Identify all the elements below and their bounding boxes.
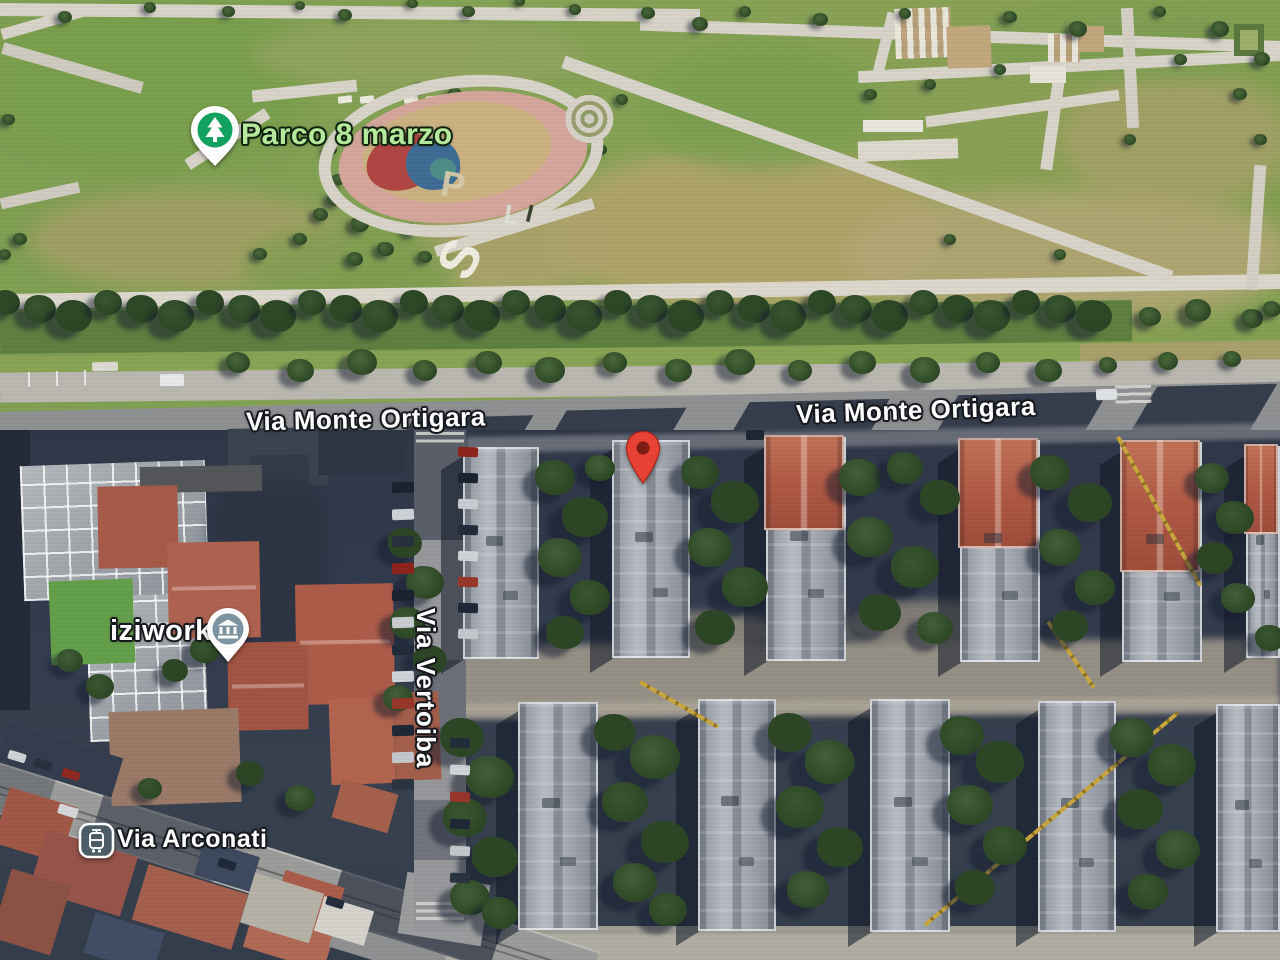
tree: [58, 11, 72, 23]
building-roof: [518, 702, 598, 930]
building-shadow: [1194, 712, 1218, 947]
tree: [298, 290, 326, 315]
tree: [872, 300, 908, 332]
roof-unit: [503, 591, 518, 600]
tree: [260, 300, 296, 332]
tree: [57, 649, 83, 672]
apartment-building: [518, 702, 598, 930]
tree: [443, 798, 487, 837]
tree: [665, 359, 692, 383]
tree: [1254, 52, 1270, 66]
apartment-building: [766, 437, 846, 661]
tree: [313, 208, 328, 221]
parked-car: [392, 779, 414, 791]
tree: [594, 714, 636, 751]
tree: [253, 248, 267, 260]
tree: [808, 290, 836, 315]
tree: [768, 713, 812, 752]
roof-unit: [1256, 535, 1263, 545]
tree: [649, 893, 687, 926]
tree: [585, 455, 615, 481]
tree: [847, 517, 893, 557]
tree: [917, 612, 953, 644]
tree: [362, 300, 398, 332]
terrain-feature: [318, 430, 403, 475]
roof-unit: [808, 589, 824, 598]
tree: [94, 290, 122, 315]
tree: [287, 359, 314, 383]
street-label-arconati: Via Arconati: [117, 825, 268, 854]
tree: [475, 351, 502, 375]
tree: [222, 6, 235, 17]
tree: [1154, 6, 1166, 17]
tree: [293, 233, 307, 245]
roof-unit: [894, 797, 912, 807]
parked-car: [458, 603, 478, 614]
tree: [1158, 352, 1178, 370]
tree: [1117, 789, 1163, 829]
tree: [924, 79, 936, 90]
tree: [295, 1, 305, 10]
tree: [1221, 583, 1255, 613]
tree: [788, 360, 812, 381]
grass-patch: [1060, 70, 1280, 210]
tree: [534, 295, 566, 323]
tree: [538, 538, 582, 577]
tree: [1035, 359, 1062, 383]
tree: [86, 674, 114, 699]
roof-unit: [1164, 592, 1180, 601]
roof-unit: [635, 532, 652, 542]
parked-car: [392, 509, 414, 521]
tree: [2, 114, 15, 125]
tree: [681, 456, 719, 489]
park-label[interactable]: Parco 8 marzo: [241, 118, 453, 152]
tree: [1216, 501, 1254, 534]
tree: [840, 295, 872, 323]
terrain-feature: [329, 697, 396, 785]
tree: [839, 459, 881, 496]
roof-unit: [739, 857, 755, 866]
apartment-building: [870, 699, 950, 932]
tree: [1099, 357, 1117, 373]
tree: [1185, 299, 1211, 322]
roof-unit: [1249, 859, 1262, 868]
tree: [482, 897, 518, 929]
tree: [1197, 542, 1233, 574]
tree: [562, 497, 608, 537]
garden-grid: [1048, 34, 1080, 62]
apartment-building: [1122, 442, 1202, 662]
roof-unit: [912, 857, 928, 866]
parking-line: [28, 372, 30, 387]
parking-line: [84, 370, 86, 385]
business-label[interactable]: iziwork: [110, 615, 212, 648]
tree: [813, 13, 828, 26]
tree: [1195, 463, 1229, 493]
tree: [462, 6, 475, 17]
tree: [940, 716, 984, 755]
tree: [887, 452, 923, 484]
building-shadow: [441, 455, 465, 674]
tree: [1241, 309, 1263, 328]
tree: [1128, 874, 1168, 909]
tree: [236, 761, 264, 786]
tree: [630, 735, 680, 779]
parking-line: [56, 371, 58, 386]
roof-unit: [542, 798, 560, 808]
apartment-building: [960, 440, 1040, 662]
tree: [770, 300, 806, 332]
tree: [0, 249, 11, 260]
apartment-building: [698, 699, 776, 931]
crosswalk: [1115, 385, 1152, 408]
tree: [196, 290, 224, 315]
roof-unit: [1002, 591, 1018, 600]
tree: [725, 349, 755, 375]
tree: [535, 460, 575, 495]
parked-car: [458, 577, 478, 588]
parked-car: [450, 845, 470, 856]
tree: [162, 659, 188, 682]
tree: [1012, 290, 1040, 315]
parked-car: [450, 872, 470, 883]
tree: [1124, 134, 1136, 145]
tree: [668, 300, 704, 332]
parked-car: [458, 551, 478, 562]
tree: [776, 786, 824, 828]
tree: [1255, 625, 1280, 651]
tree: [285, 785, 315, 811]
tree: [899, 8, 911, 19]
parked-car: [458, 499, 478, 510]
tree: [1003, 11, 1017, 23]
garden-plot: [1030, 66, 1066, 83]
roof-unit: [1079, 858, 1095, 867]
tree: [1148, 744, 1196, 786]
parked-car: [458, 525, 478, 536]
tree: [1069, 21, 1087, 37]
vehicle: [746, 430, 764, 440]
tree: [983, 826, 1027, 865]
tree: [1075, 570, 1115, 605]
tree: [1156, 830, 1200, 869]
tree: [891, 546, 939, 588]
tree: [566, 300, 602, 332]
red-tile-roof: [958, 438, 1038, 548]
parked-car: [450, 791, 470, 802]
roof-unit: [721, 796, 738, 806]
building-roof: [698, 699, 776, 931]
building-shadow: [848, 707, 872, 947]
tree: [226, 352, 250, 373]
tree: [228, 295, 260, 323]
tree: [472, 837, 518, 877]
roof-unit: [984, 533, 1002, 543]
tree: [910, 357, 940, 383]
building-shadow: [590, 448, 614, 673]
tree: [688, 528, 732, 567]
tree: [466, 756, 514, 798]
tree: [613, 863, 657, 902]
tree: [347, 252, 363, 266]
tree: [910, 290, 938, 315]
tree: [377, 242, 394, 257]
tree: [330, 295, 362, 323]
tree: [976, 741, 1024, 783]
building-roof: [870, 699, 950, 932]
tree: [1223, 351, 1241, 367]
roof-unit: [1264, 590, 1271, 599]
street-label-ortigara-west: Via Monte Ortigara: [246, 401, 486, 437]
tree: [138, 778, 162, 799]
roof-unit: [560, 857, 576, 866]
parked-car: [450, 764, 470, 775]
tree: [1039, 529, 1081, 566]
tree: [1044, 295, 1076, 323]
tree: [535, 357, 565, 383]
tree: [1139, 307, 1161, 326]
tree: [347, 349, 377, 375]
tree: [464, 300, 500, 332]
tree: [604, 290, 632, 315]
tree: [859, 594, 901, 631]
tree: [692, 17, 708, 31]
roof-unit: [1146, 534, 1164, 544]
tree: [400, 290, 428, 315]
shelter: [92, 362, 118, 371]
parked-car: [458, 473, 478, 484]
parked-car: [458, 629, 478, 640]
tree: [722, 567, 768, 607]
tree: [944, 234, 956, 245]
tree: [976, 352, 1000, 373]
tree: [974, 300, 1010, 332]
parked-car: [392, 536, 414, 548]
tree: [1030, 455, 1070, 490]
tree: [1054, 249, 1066, 260]
parked-car: [458, 447, 478, 458]
tree: [711, 481, 759, 523]
tree: [546, 616, 584, 649]
tree: [338, 9, 352, 21]
tree: [1174, 54, 1187, 65]
roof-unit: [486, 536, 503, 546]
tree: [817, 827, 863, 867]
tree: [570, 580, 610, 615]
tree: [787, 871, 829, 908]
tree: [641, 7, 655, 19]
red-tile-roof: [764, 435, 844, 530]
apartment-building: [1216, 704, 1280, 932]
tree: [1052, 610, 1088, 642]
street-label-vertoiba: Via Vertoiba: [410, 608, 441, 768]
garden-plot: [946, 25, 991, 69]
tree: [1076, 300, 1112, 332]
tree: [1233, 88, 1247, 100]
tree: [739, 6, 751, 17]
tree: [13, 233, 27, 245]
vehicle: [160, 374, 184, 386]
crosswalk: [416, 432, 464, 447]
tree: [849, 351, 876, 375]
tree: [920, 480, 960, 515]
tree: [942, 295, 974, 323]
roof-unit: [653, 588, 669, 597]
tree: [805, 740, 855, 784]
parked-car: [392, 563, 414, 575]
tree: [1211, 21, 1229, 37]
roof-unit: [790, 531, 808, 541]
parked-car: [450, 737, 470, 748]
tree: [126, 295, 158, 323]
tree: [602, 782, 648, 822]
terrain-feature: [108, 708, 241, 806]
tree: [144, 2, 156, 13]
parked-car: [392, 482, 414, 494]
satellite-map[interactable]: P L I S: [0, 0, 1280, 960]
tree: [947, 785, 993, 825]
park-path: [858, 138, 959, 161]
tree: [1068, 483, 1112, 522]
building-roof: [1216, 704, 1280, 932]
tree: [636, 295, 668, 323]
tree: [994, 64, 1006, 75]
tree: [158, 300, 194, 332]
tree: [56, 300, 92, 332]
tree: [603, 352, 627, 373]
vehicle: [1096, 389, 1117, 401]
tree: [1110, 718, 1154, 757]
tree: [569, 4, 581, 15]
tree: [407, 0, 418, 8]
tree: [413, 360, 437, 381]
tree: [502, 290, 530, 315]
tree: [1254, 134, 1267, 145]
tree: [641, 821, 689, 863]
tree: [432, 295, 464, 323]
tree: [695, 610, 735, 645]
tree: [864, 89, 877, 100]
parked-car: [392, 590, 414, 602]
tree: [706, 290, 734, 315]
roof-unit: [1235, 800, 1249, 810]
tree: [955, 870, 995, 905]
tree: [616, 94, 628, 105]
garden-plot: [863, 120, 923, 132]
tree: [1263, 301, 1280, 317]
tree: [738, 295, 770, 323]
tree: [24, 295, 56, 323]
parked-car: [450, 818, 470, 829]
